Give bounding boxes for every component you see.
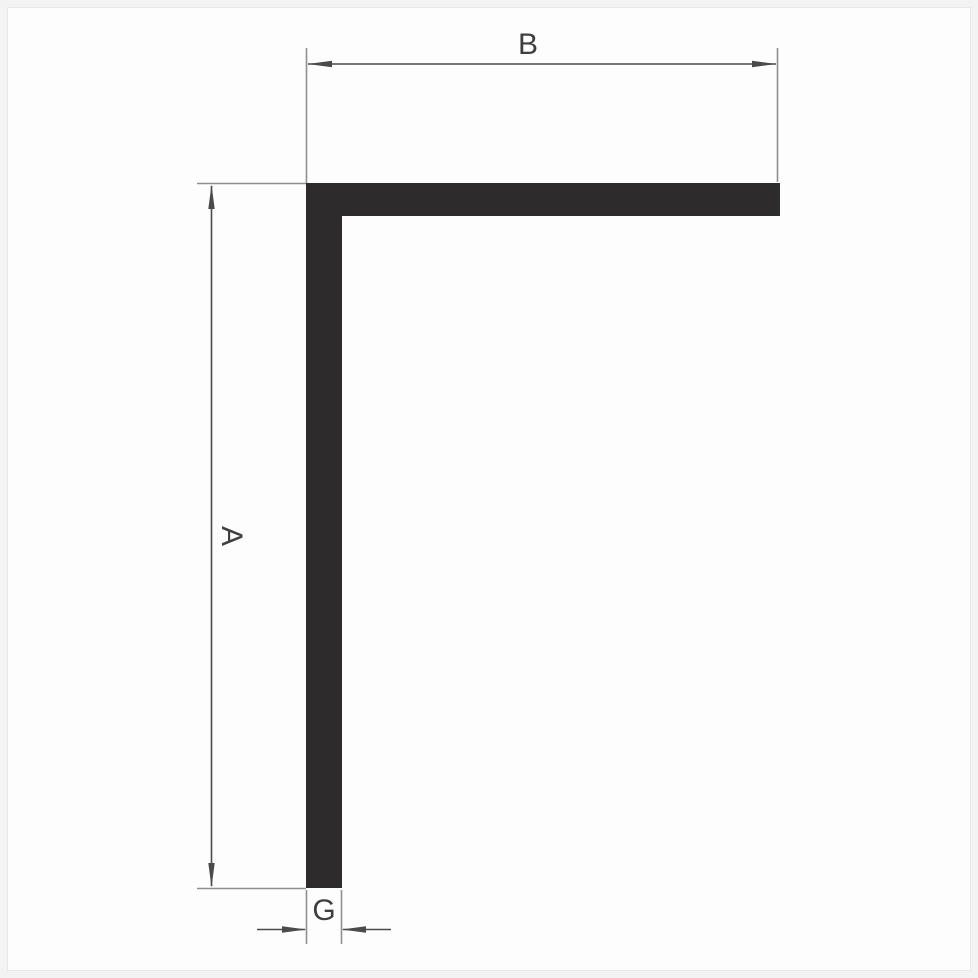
profile-drawing xyxy=(0,0,978,978)
arrowhead-down-icon xyxy=(208,863,214,888)
arrowhead-up-icon xyxy=(208,185,214,210)
arrowhead-left-icon xyxy=(308,61,333,67)
arrowhead-right-icon xyxy=(752,61,777,67)
dimension-label-b: B xyxy=(518,30,538,60)
g-arrowhead-right-icon xyxy=(282,926,307,932)
profile-horizontal-flange xyxy=(306,183,780,216)
dimension-label-a: A xyxy=(216,526,246,546)
profile-vertical-leg xyxy=(306,183,342,888)
dimension-label-g: G xyxy=(312,896,335,926)
g-arrowhead-left-icon xyxy=(342,926,367,932)
